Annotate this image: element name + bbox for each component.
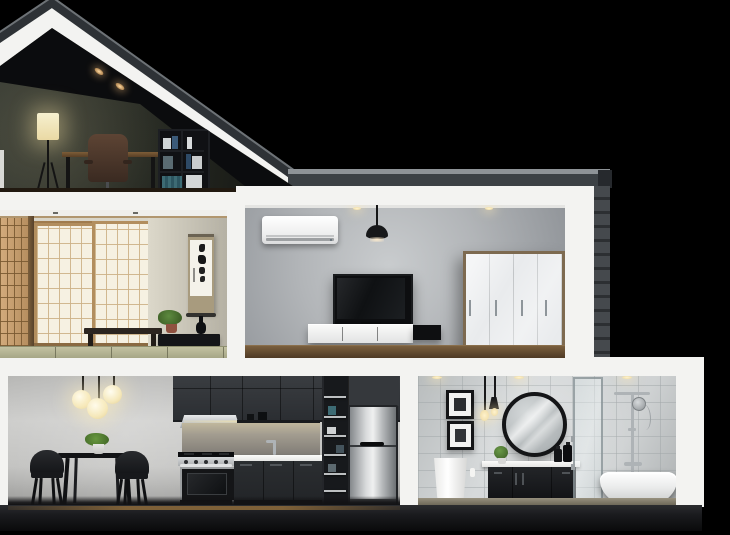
vanity-handle: [522, 473, 524, 485]
shelf: [324, 473, 346, 475]
bathroom-right-wall: [676, 357, 704, 507]
book: [186, 154, 191, 169]
shelf: [324, 396, 346, 398]
artwork-center: [454, 398, 466, 411]
plant-pot: [166, 324, 177, 333]
pendant-cord: [376, 205, 378, 226]
shelf-item: [328, 406, 336, 415]
vanity-handle: [494, 472, 502, 474]
table-plant: [85, 433, 111, 455]
counter-plant: [494, 446, 510, 465]
glass-shower-screen: [573, 377, 603, 505]
book: [172, 136, 178, 149]
vanity-seam: [551, 467, 552, 500]
ac-louver: [266, 238, 334, 241]
hanging-scroll: 如雲内大: [186, 234, 216, 318]
ceiling-downlight: [514, 376, 524, 379]
slatted-shoji-panel: [0, 218, 28, 358]
fridge-handle: [360, 442, 384, 446]
shelf: [324, 435, 346, 437]
shelf-divider: [160, 150, 204, 152]
refrigerator: [348, 405, 398, 505]
plant-pot: [93, 444, 104, 454]
framed-artwork: [446, 390, 474, 419]
bulb-cord: [494, 376, 496, 397]
bulb-cord: [484, 376, 486, 410]
cabinet-seam: [313, 376, 314, 420]
ac-vent-line: [266, 235, 334, 237]
pendant-lamp: [363, 205, 391, 245]
ceiling-downlight: [485, 207, 493, 210]
calligraphy-stroke: [199, 267, 205, 274]
oven-window: [187, 473, 227, 495]
bathroom: [418, 376, 676, 505]
wardrobe-handle: [495, 300, 497, 316]
jp-ceiling-vent: [133, 212, 138, 214]
drawer-handle: [300, 464, 312, 466]
chair-armrest: [123, 160, 132, 164]
faucet-body: [273, 440, 276, 455]
cabinet-seam: [280, 376, 281, 420]
bottle-cap: [556, 446, 560, 449]
mid-floor-slab: [0, 357, 704, 376]
calligraphy-stroke: [198, 255, 206, 264]
wall-mounted-tv: [333, 274, 413, 327]
glass-hinge: [571, 464, 575, 470]
desk-leg: [151, 157, 155, 191]
bathroom-floor: [418, 498, 676, 505]
shelf: [324, 416, 346, 418]
japanese-room: 如雲内大: [0, 210, 227, 358]
cabinet-above-fridge: [348, 376, 399, 406]
pendant-cord: [82, 376, 84, 391]
ledge-item: [247, 414, 254, 420]
divider-wall-japanese-living: [227, 192, 245, 362]
shelf: [324, 490, 346, 492]
shelf-item: [336, 445, 344, 453]
globe-light: [103, 385, 122, 404]
console-seam: [342, 327, 343, 341]
ledge-item: [258, 412, 267, 420]
brick-side-column: [594, 186, 610, 358]
shelf-item: [328, 464, 336, 472]
shower-hose: [636, 404, 651, 430]
vanity-handle: [515, 473, 517, 485]
lamp-pole: [47, 140, 49, 190]
floor-lamp: [35, 110, 65, 192]
book: [163, 138, 171, 149]
attic-study-room: [0, 0, 308, 192]
cabinet-seam: [263, 461, 264, 501]
faucet: [266, 440, 278, 455]
divider-wall-kitchen-bath: [400, 376, 418, 507]
hanging-bulb: [488, 376, 502, 418]
book: [163, 156, 173, 169]
media-console-black: [413, 325, 441, 340]
cutaway-house-scene: 如雲内大: [0, 0, 730, 535]
console-seam: [377, 327, 378, 341]
calligraphy-stroke: [199, 244, 205, 252]
burner-grate: [202, 453, 212, 455]
backsplash: [182, 423, 320, 455]
wall-fixture: [470, 468, 475, 477]
vanity-cabinet: [488, 467, 576, 500]
wardrobe: [463, 251, 565, 358]
wardrobe-handle: [521, 300, 523, 316]
living-room: [245, 205, 565, 358]
burner-grate: [219, 453, 229, 455]
low-cabinet: [158, 334, 220, 346]
shelf: [324, 454, 346, 456]
pendant-glow: [370, 237, 384, 242]
dining-kitchen-room: [8, 376, 400, 505]
ceiling-downlight: [432, 376, 442, 379]
bottle-cap: [566, 442, 570, 445]
cabinet-seam: [242, 376, 243, 420]
shower-column: [614, 390, 658, 472]
vase-body: [196, 322, 206, 334]
shelf-item: [327, 427, 336, 434]
ceiling-downlight: [353, 207, 361, 210]
scroll-top-band: [188, 234, 214, 237]
fridge-doors: [350, 407, 396, 499]
living-ceiling-line: [245, 205, 565, 208]
wardrobe-handle: [469, 300, 471, 316]
cabinet-seam: [210, 376, 211, 420]
artwork-center: [455, 429, 466, 442]
chair-back: [88, 134, 128, 182]
vanity-handle: [562, 472, 570, 474]
jp-ceiling-vent: [53, 212, 58, 214]
toiletry-bottle: [554, 449, 562, 462]
chair-armrest: [84, 160, 93, 164]
tv-screen: [337, 278, 405, 319]
shower-slider-knob: [628, 428, 636, 431]
office-chair: [84, 134, 132, 192]
ikebana-vase: [196, 316, 206, 334]
glass-hinge: [571, 436, 575, 442]
dining-floor-shadow: [8, 496, 400, 505]
media-console-white: [308, 324, 413, 343]
bookshelf: [158, 129, 210, 196]
ac-indicator-led: [330, 239, 332, 241]
air-conditioner: [262, 216, 338, 244]
desk-leg: [66, 157, 70, 191]
book: [192, 156, 202, 169]
lamp-shade: [37, 113, 59, 140]
living-wood-floor: [245, 345, 565, 358]
drawer-handle: [270, 464, 282, 466]
attic-left-wall-sliver: [0, 150, 4, 192]
shelf-divider: [160, 171, 204, 173]
living-right-wall: [564, 186, 594, 358]
ground-left-wall: [0, 376, 8, 507]
drawer-handle: [240, 464, 252, 466]
floor-wood-accent: [8, 506, 400, 510]
pendant-cord: [98, 376, 100, 399]
calligraphy-stroke: [200, 276, 205, 282]
vanity-seam: [512, 467, 513, 500]
cabinet-seam: [293, 461, 294, 501]
shower-valve: [624, 462, 642, 466]
living-room-top-slab: [236, 186, 566, 207]
calligraphy-side-column: [193, 268, 195, 282]
globe-pendant-cluster: [68, 376, 128, 424]
tatami-floor: [0, 346, 227, 358]
book: [187, 137, 192, 149]
wardrobe-handle: [545, 300, 547, 316]
framed-artwork: [447, 421, 474, 450]
potted-plant: [158, 310, 184, 334]
burner-grate: [184, 453, 194, 455]
plant-pot: [498, 458, 506, 464]
plant-foliage: [158, 310, 182, 325]
ceiling-downlight: [622, 376, 632, 379]
filament-bulb: [491, 408, 498, 416]
toiletry-bottle: [563, 445, 572, 462]
